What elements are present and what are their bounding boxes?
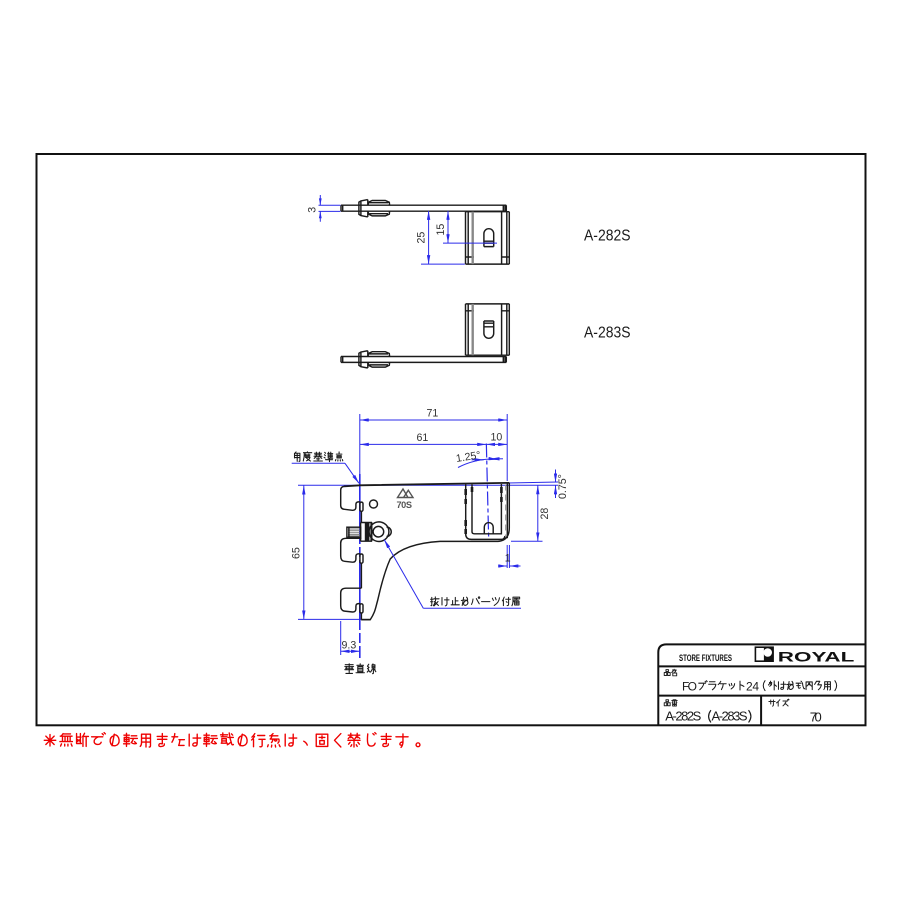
svg-text:15: 15 [435, 224, 447, 236]
svg-text:28: 28 [539, 508, 551, 520]
svg-text:A-283S: A-283S [712, 709, 748, 724]
svg-text:1: 1 [505, 553, 511, 565]
svg-text:STORE FIXTURES: STORE FIXTURES [679, 653, 732, 664]
svg-text:0.75°: 0.75° [557, 474, 569, 499]
svg-text:25: 25 [416, 232, 428, 244]
svg-text:3: 3 [307, 207, 319, 213]
svg-text:70S: 70S [397, 500, 413, 510]
svg-text:A-282S: A-282S [665, 709, 701, 724]
svg-text:10: 10 [491, 432, 503, 444]
svg-text:65: 65 [291, 547, 303, 559]
svg-text:9.3: 9.3 [342, 639, 357, 651]
svg-text:ROYAL: ROYAL [778, 650, 855, 665]
svg-text:71: 71 [427, 408, 439, 420]
svg-text:70: 70 [810, 710, 822, 725]
svg-text:61: 61 [417, 432, 429, 444]
svg-text:24: 24 [746, 680, 759, 694]
svg-text:FO: FO [682, 680, 697, 694]
svg-text:A-282S: A-282S [584, 227, 631, 244]
svg-text:A-283S: A-283S [584, 324, 631, 341]
